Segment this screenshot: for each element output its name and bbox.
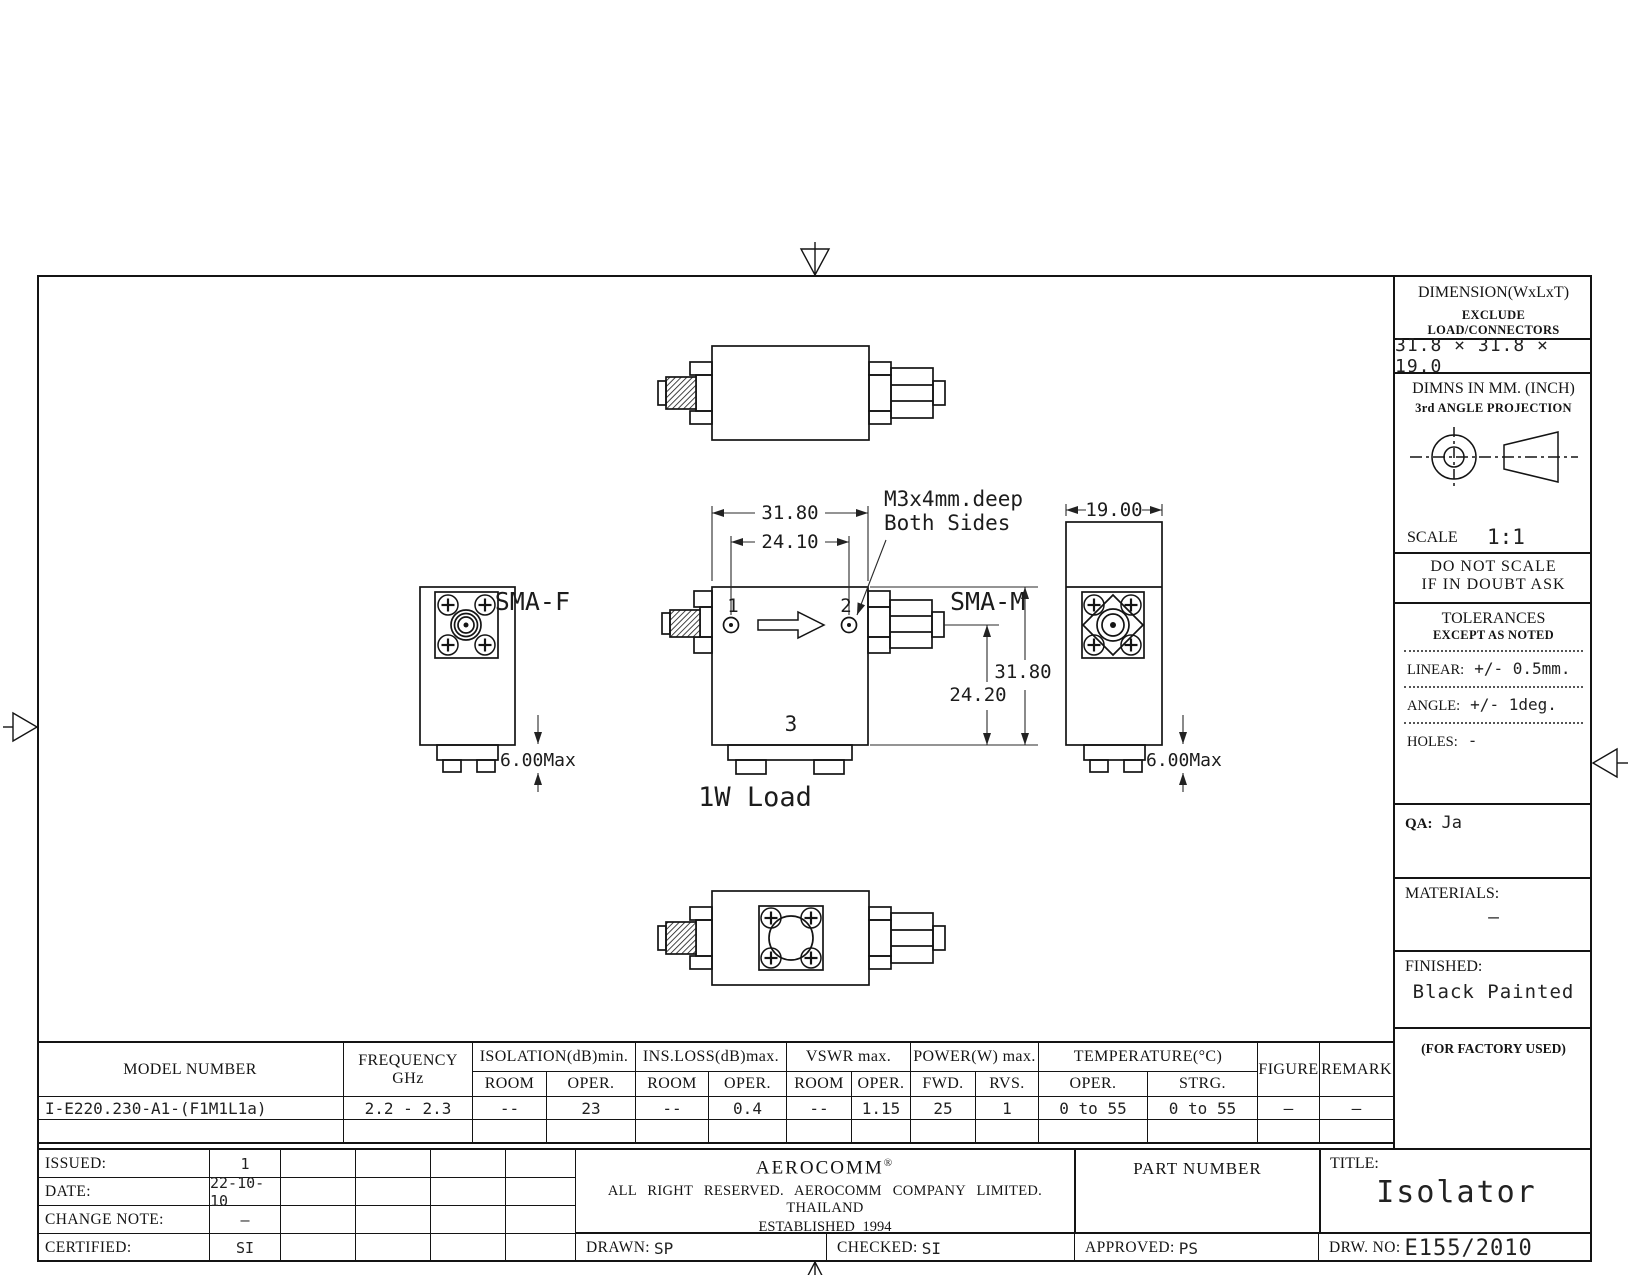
empty-cell: [37, 1120, 344, 1142]
empty-cell: [1320, 1120, 1393, 1142]
registered-mark: ®: [884, 1157, 894, 1169]
empty-cell: [431, 1234, 506, 1262]
empty-cell: [356, 1206, 431, 1234]
cell-value: --: [787, 1097, 852, 1120]
materials-section: MATERIALS: –: [1395, 879, 1592, 952]
approved-label: APPROVED:: [1085, 1239, 1175, 1257]
linear-tolerance-row: LINEAR: +/- 0.5mm.: [1395, 652, 1592, 679]
cell-value: 0 to 55: [1148, 1097, 1258, 1120]
title-label: TITLE:: [1330, 1155, 1592, 1173]
drw-no-label: DRW. NO:: [1329, 1239, 1401, 1257]
flange-screws: [761, 908, 821, 968]
port-2-label: 2: [840, 595, 851, 617]
rights-line: ALL RIGHT RESERVED. AEROCOMM COMPANY LIM…: [576, 1183, 1074, 1217]
cell-value: 1: [976, 1097, 1039, 1120]
checked-label: CHECKED:: [837, 1239, 918, 1257]
sub-header: ROOM: [473, 1072, 547, 1097]
port-1-label: 1: [727, 595, 738, 617]
sub-header: OPER.: [547, 1072, 636, 1097]
tolerances-section: TOLERANCES EXCEPT AS NOTED LINEAR: +/- 0…: [1395, 610, 1592, 805]
dim-body-width: 31.80: [761, 502, 818, 524]
empty-cell: [636, 1120, 709, 1142]
dim-tab-left: 6.00Max: [500, 750, 576, 771]
company-name: AEROCOMM®: [576, 1157, 1074, 1179]
sub-header: RVS.: [976, 1072, 1039, 1097]
dimension-title: DIMENSION(WxLxT): [1395, 284, 1592, 302]
holes-label: HOLES:: [1407, 734, 1458, 750]
dimension-value-section: 31.8 × 31.8 × 19.0: [1395, 340, 1592, 374]
sub-header: FWD.: [911, 1072, 976, 1097]
date-value: 22-10-10: [210, 1178, 281, 1206]
tolerances-title: TOLERANCES: [1395, 610, 1592, 628]
dimension-value: 31.8 × 31.8 × 19.0: [1395, 335, 1592, 377]
warning-section: DO NOT SCALE IF IN DOUBT ASK: [1395, 554, 1592, 604]
approved-cell: APPROVED: PS: [1075, 1234, 1319, 1262]
materials-value: –: [1395, 907, 1592, 928]
projection-section: DIMNS IN MM. (INCH) 3rd ANGLE PROJECTION…: [1395, 380, 1592, 554]
m3-note-line2: Both Sides: [884, 511, 1010, 535]
angle-tolerance-row: ANGLE: +/- 1deg.: [1395, 688, 1592, 715]
dim-body-depth: 19.00: [1085, 499, 1142, 521]
cell-value: 0.4: [709, 1097, 787, 1120]
empty-cell: [1148, 1120, 1258, 1142]
empty-cell: [506, 1206, 576, 1234]
title-value: Isolator: [1321, 1175, 1592, 1210]
finished-label: FINISHED:: [1395, 958, 1592, 976]
cell-value: 0 to 55: [1039, 1097, 1148, 1120]
info-panel: DIMENSION(WxLxT) EXCLUDE LOAD/CONNECTORS…: [1393, 275, 1592, 1150]
company-block: AEROCOMM® ALL RIGHT RESERVED. AEROCOMM C…: [576, 1148, 1074, 1234]
sma-m-label: SMA-M: [950, 587, 1025, 616]
finished-section: FINISHED: Black Painted: [1395, 952, 1592, 1029]
dimension-lines: [538, 504, 1183, 792]
checked-cell: CHECKED: SI: [827, 1234, 1075, 1262]
load-label: 1W Load: [698, 782, 812, 813]
col-header-model: MODEL NUMBER: [37, 1043, 344, 1097]
empty-cell: [709, 1120, 787, 1142]
sma-f-label: SMA-F: [495, 587, 570, 616]
empty-cell: [356, 1178, 431, 1206]
sub-header: ROOM: [787, 1072, 852, 1097]
empty-cell: [1258, 1120, 1320, 1142]
load-circle: [769, 916, 813, 960]
materials-label: MATERIALS:: [1395, 885, 1592, 903]
cell-model-number: I-E220.230-A1-(F1M1L1a): [37, 1097, 344, 1120]
qa-label: QA:: [1405, 816, 1433, 832]
third-angle-projection-symbol: [1408, 420, 1580, 494]
cell-value: --: [636, 1097, 709, 1120]
empty-cell: [281, 1178, 356, 1206]
linear-value: +/- 0.5mm.: [1474, 659, 1570, 678]
approved-value: PS: [1179, 1239, 1198, 1258]
top-view: [658, 346, 945, 440]
cell-value: 25: [911, 1097, 976, 1120]
right-side-view: [1066, 522, 1162, 772]
cell-value: 23: [547, 1097, 636, 1120]
empty-cell: [281, 1206, 356, 1234]
angle-label: ANGLE:: [1407, 698, 1460, 714]
empty-cell: [356, 1234, 431, 1262]
signal-direction-arrow: [758, 612, 824, 638]
linear-label: LINEAR:: [1407, 662, 1464, 678]
empty-cell: [281, 1150, 356, 1178]
bottom-view: [658, 891, 945, 985]
tolerances-note: EXCEPT AS NOTED: [1395, 628, 1592, 643]
empty-cell: [344, 1120, 473, 1142]
col-header-frequency: FREQUENCY GHz: [344, 1043, 473, 1097]
drawn-value: SP: [654, 1239, 673, 1258]
col-header-vswr: VSWR max.: [787, 1043, 911, 1072]
col-header-power: POWER(W) max.: [911, 1043, 1039, 1072]
dim-body-height: 31.80: [994, 661, 1051, 683]
frequency-line1: FREQUENCY: [358, 1052, 458, 1070]
drawn-cell: DRAWN: SP: [576, 1234, 827, 1262]
col-header-temperature: TEMPERATURE(°C): [1039, 1043, 1258, 1072]
scale-label: SCALE: [1407, 529, 1458, 547]
sub-header: ROOM: [636, 1072, 709, 1097]
angle-value: +/- 1deg.: [1470, 695, 1557, 714]
spec-table: MODEL NUMBER FREQUENCY GHz ISOLATION(dB)…: [37, 1041, 1393, 1144]
col-header-ins-loss: INS.LOSS(dB)max.: [636, 1043, 787, 1072]
empty-cell: [911, 1120, 976, 1142]
drawing-texts: 31.80 24.10 19.00 31.80 24.20 6.00Max 6.…: [495, 487, 1222, 813]
certified-label: CERTIFIED:: [37, 1234, 210, 1262]
empty-cell: [431, 1206, 506, 1234]
dim-tab-right: 6.00Max: [1146, 750, 1222, 771]
empty-cell: [976, 1120, 1039, 1142]
sub-header: OPER.: [852, 1072, 911, 1097]
m3-note-line1: M3x4mm.deep: [884, 487, 1023, 511]
empty-cell: [787, 1120, 852, 1142]
part-number-block: PART NUMBER: [1074, 1148, 1319, 1234]
front-view: [662, 587, 944, 774]
qa-section: QA: Ja: [1395, 805, 1592, 879]
cell-value: 1.15: [852, 1097, 911, 1120]
dim-hole-spacing: 24.10: [761, 531, 818, 553]
qa-value: Ja: [1442, 813, 1462, 833]
m3-leader-line: [857, 540, 886, 615]
drw-no-value: E155/2010: [1405, 1236, 1533, 1261]
sub-header: OPER.: [709, 1072, 787, 1097]
warning-line1: DO NOT SCALE: [1395, 558, 1592, 576]
sub-header: OPER.: [1039, 1072, 1148, 1097]
signature-row: DRAWN: SP CHECKED: SI APPROVED: PS DRW. …: [576, 1234, 1592, 1262]
part-number-label: PART NUMBER: [1076, 1159, 1319, 1179]
sub-header: STRG.: [1148, 1072, 1258, 1097]
dimension-section: DIMENSION(WxLxT) EXCLUDE LOAD/CONNECTORS: [1395, 275, 1592, 340]
cell-value: —: [1258, 1097, 1320, 1120]
factory-note-section: (FOR FACTORY USED): [1395, 1029, 1592, 1162]
title-block: TITLE: Isolator: [1319, 1148, 1592, 1234]
cell-value: —: [1320, 1097, 1393, 1120]
dimension-note: EXCLUDE LOAD/CONNECTORS: [1395, 308, 1592, 338]
port-3-label: 3: [785, 712, 798, 736]
holes-tolerance-row: HOLES: -: [1395, 724, 1592, 751]
dim-port-height: 24.20: [949, 684, 1006, 706]
col-header-remark: REMARK: [1320, 1043, 1393, 1097]
checked-value: SI: [922, 1239, 941, 1258]
empty-cell: [1039, 1120, 1148, 1142]
empty-cell: [506, 1178, 576, 1206]
empty-cell: [431, 1150, 506, 1178]
revision-block: ISSUED: 1 DATE: 22-10-10 CHANGE NOTE: – …: [37, 1148, 576, 1262]
empty-cell: [431, 1178, 506, 1206]
drawn-label: DRAWN:: [586, 1239, 650, 1257]
empty-cell: [506, 1234, 576, 1262]
units-line: DIMNS IN MM. (INCH): [1395, 380, 1592, 398]
empty-cell: [506, 1150, 576, 1178]
projection-line: 3rd ANGLE PROJECTION: [1395, 401, 1592, 416]
col-header-figure: FIGURE: [1258, 1043, 1320, 1097]
empty-cell: [473, 1120, 547, 1142]
change-note-label: CHANGE NOTE:: [37, 1206, 210, 1234]
change-note-value: –: [210, 1206, 281, 1234]
date-label: DATE:: [37, 1178, 210, 1206]
warning-line2: IF IN DOUBT ASK: [1395, 576, 1592, 594]
issued-label: ISSUED:: [37, 1150, 210, 1178]
finished-value: Black Painted: [1395, 981, 1592, 1003]
empty-cell: [356, 1150, 431, 1178]
holes-value: -: [1468, 731, 1478, 750]
certified-value: SI: [210, 1234, 281, 1262]
frequency-line2: GHz: [392, 1070, 423, 1088]
empty-cell: [547, 1120, 636, 1142]
factory-note: (FOR FACTORY USED): [1395, 1041, 1592, 1057]
col-header-isolation: ISOLATION(dB)min.: [473, 1043, 636, 1072]
cell-frequency: 2.2 - 2.3: [344, 1097, 473, 1120]
drw-no-cell: DRW. NO: E155/2010: [1319, 1234, 1592, 1262]
empty-cell: [852, 1120, 911, 1142]
scale-value: 1:1: [1487, 525, 1525, 549]
cell-value: --: [473, 1097, 547, 1120]
empty-cell: [281, 1234, 356, 1262]
